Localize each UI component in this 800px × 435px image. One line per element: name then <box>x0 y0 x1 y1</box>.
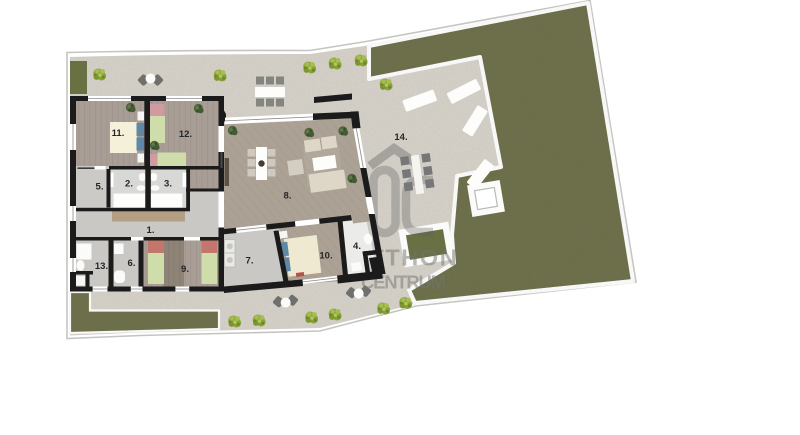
svg-text:12.: 12. <box>179 129 192 140</box>
svg-text:3.: 3. <box>164 179 172 190</box>
svg-text:2.: 2. <box>125 179 133 190</box>
svg-text:7.: 7. <box>246 256 254 267</box>
svg-text:13.: 13. <box>95 261 108 272</box>
svg-text:8.: 8. <box>284 190 292 201</box>
svg-text:14.: 14. <box>394 132 407 143</box>
svg-text:9.: 9. <box>181 264 189 275</box>
svg-text:10.: 10. <box>319 250 332 261</box>
svg-text:4.: 4. <box>353 241 361 252</box>
svg-text:1.: 1. <box>147 225 155 236</box>
svg-text:5.: 5. <box>96 182 104 193</box>
svg-text:11.: 11. <box>112 128 125 139</box>
svg-text:6.: 6. <box>128 258 136 269</box>
